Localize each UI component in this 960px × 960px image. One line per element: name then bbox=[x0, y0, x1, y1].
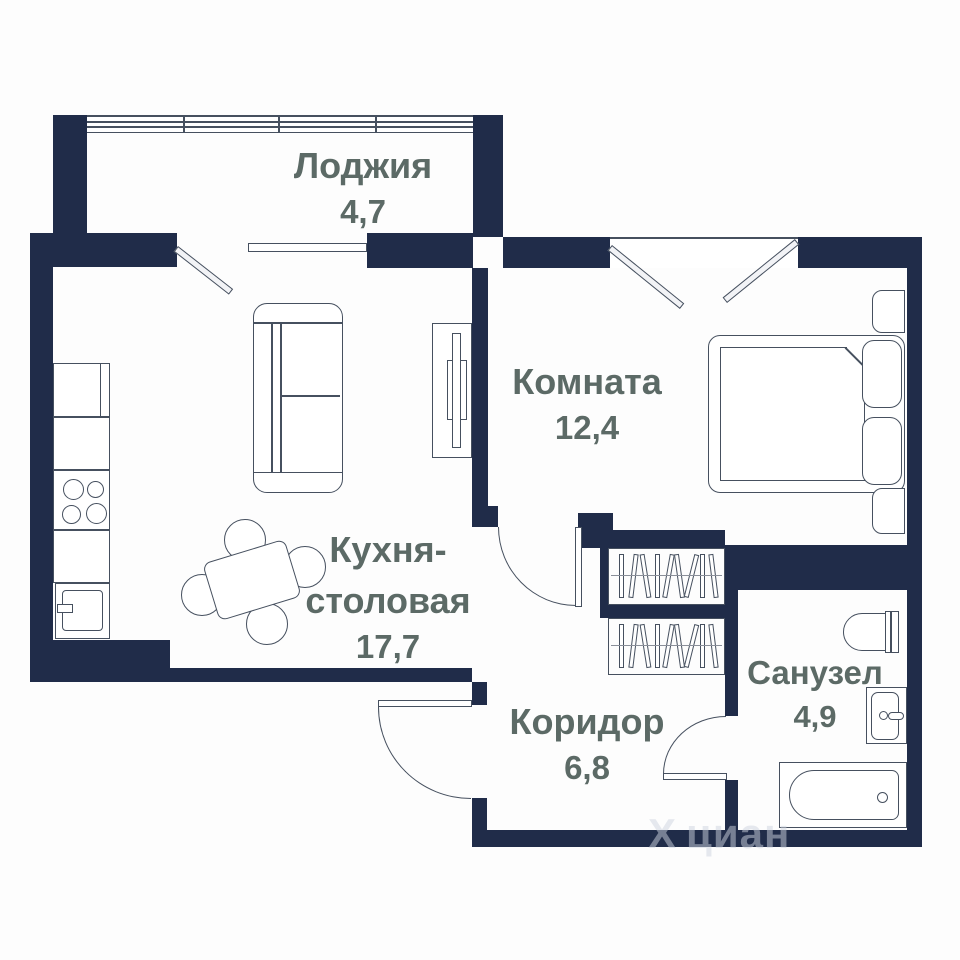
corridor-left-wall-upper bbox=[472, 682, 487, 705]
balcony-door-leaf bbox=[174, 246, 233, 295]
loggia-window bbox=[87, 115, 473, 133]
wardrobe bbox=[608, 548, 725, 605]
wardrobe bbox=[608, 618, 725, 675]
bathroom-label: Санузел 4,9 bbox=[715, 650, 915, 737]
kitchen-name-line1: Кухня- bbox=[288, 524, 488, 575]
room-label: Комната 12,4 bbox=[487, 356, 687, 450]
cian-logo-icon: Х bbox=[648, 810, 677, 857]
room-door-arc bbox=[498, 527, 576, 606]
floor-plan: Лоджия 4,7 Комната 12,4 Кухня- столовая … bbox=[0, 0, 960, 960]
bathroom-area: 4,9 bbox=[715, 697, 915, 737]
dining-table bbox=[202, 539, 302, 622]
watermark-text: циан bbox=[686, 810, 790, 857]
kitchen-cabinet bbox=[53, 530, 110, 583]
kitchen-area: 17,7 bbox=[288, 626, 488, 669]
room-name: Комната bbox=[487, 356, 687, 407]
nightstand bbox=[872, 290, 905, 333]
stove bbox=[53, 470, 110, 530]
kitchen-door-leaf bbox=[378, 700, 472, 707]
kitchen-cabinet bbox=[53, 417, 110, 470]
room-top-wall-left bbox=[503, 237, 610, 268]
kitchen-room-divider-wall bbox=[472, 268, 488, 516]
kitchen-cabinet bbox=[53, 363, 110, 417]
watermark: Хциан bbox=[648, 810, 790, 858]
wardrobe-separator-wall bbox=[600, 605, 738, 618]
kitchen-door-arc bbox=[378, 707, 471, 799]
tv bbox=[452, 333, 461, 448]
kitchen-label: Кухня- столовая 17,7 bbox=[288, 524, 488, 669]
loggia-right-wall bbox=[473, 115, 503, 237]
toilet-bowl bbox=[843, 613, 889, 651]
nightstand bbox=[872, 488, 905, 534]
room-door-leaf bbox=[575, 527, 582, 607]
toilet-tank bbox=[885, 611, 899, 653]
loggia-area: 4,7 bbox=[263, 191, 463, 234]
pillow bbox=[862, 340, 902, 408]
sofa bbox=[253, 303, 343, 493]
loggia-label: Лоджия 4,7 bbox=[263, 140, 463, 234]
room-area: 12,4 bbox=[487, 407, 687, 450]
kitchen-top-wall-right bbox=[367, 233, 473, 268]
room-corridor-wall bbox=[608, 530, 725, 548]
bathtub-drain bbox=[877, 792, 888, 803]
kitchen-loggia-window-sill bbox=[248, 243, 367, 252]
room-top-wall-right bbox=[798, 237, 922, 268]
bed-blanket bbox=[720, 347, 865, 481]
kitchen-sink bbox=[55, 583, 110, 639]
kitchen-bottom-wall bbox=[53, 668, 472, 682]
corridor-name: Коридор bbox=[487, 696, 687, 747]
kitchen-left-wall bbox=[30, 233, 53, 682]
kitchen-name-line2: столовая bbox=[288, 575, 488, 626]
pillow bbox=[862, 417, 902, 485]
corridor-area: 6,8 bbox=[487, 747, 687, 790]
corridor-left-wall-lower bbox=[472, 798, 487, 832]
bathroom-name: Санузел bbox=[715, 650, 915, 697]
outer-right-wall bbox=[907, 237, 922, 847]
room-bathroom-wall bbox=[723, 545, 907, 590]
corridor-label: Коридор 6,8 bbox=[487, 696, 687, 790]
loggia-name: Лоджия bbox=[263, 140, 463, 191]
